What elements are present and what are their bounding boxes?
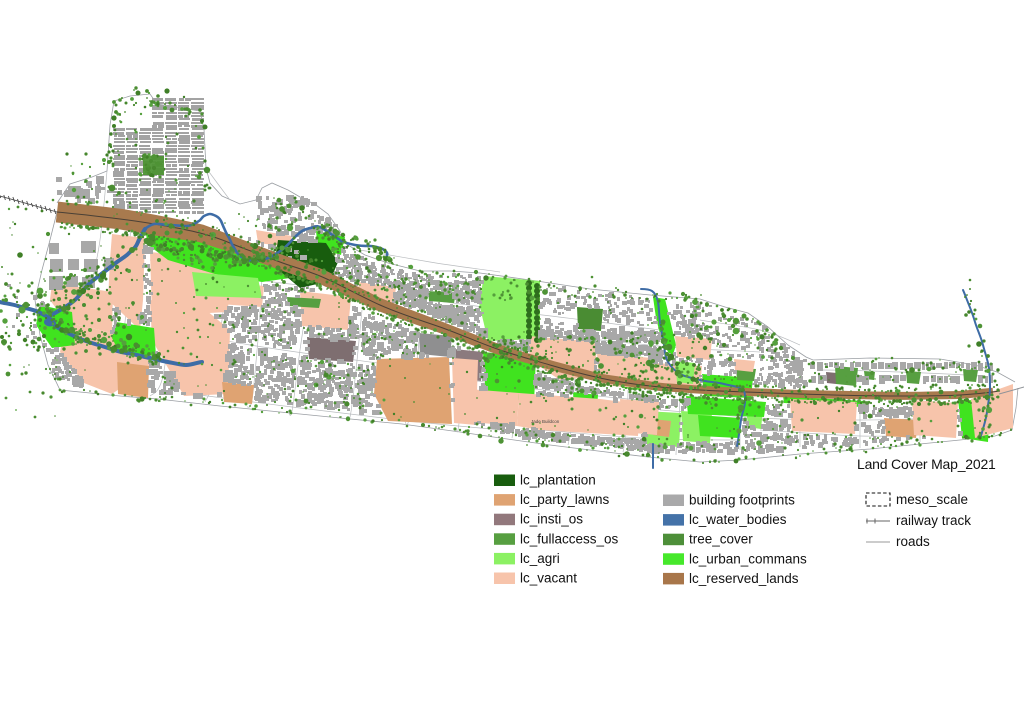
- svg-text:roads: roads: [896, 534, 930, 549]
- svg-text:Land Cover Map_2021: Land Cover Map_2021: [857, 456, 996, 472]
- svg-text:lc_plantation: lc_plantation: [520, 473, 596, 488]
- svg-text:lc_water_bodies: lc_water_bodies: [689, 512, 787, 527]
- svg-text:Jade Buildcon: Jade Buildcon: [531, 419, 560, 424]
- svg-text:lc_agri: lc_agri: [520, 551, 560, 566]
- svg-text:building footprints: building footprints: [689, 493, 795, 508]
- svg-text:railway track: railway track: [896, 513, 971, 528]
- svg-text:meso_scale: meso_scale: [896, 492, 968, 507]
- svg-text:lc_vacant: lc_vacant: [520, 571, 577, 586]
- svg-text:tree_cover: tree_cover: [689, 532, 753, 547]
- svg-text:lc_insti_os: lc_insti_os: [520, 512, 583, 527]
- svg-text:lc_reserved_lands: lc_reserved_lands: [689, 571, 799, 586]
- svg-text:lc_party_lawns: lc_party_lawns: [520, 492, 610, 507]
- svg-text:lc_urban_commans: lc_urban_commans: [689, 551, 807, 566]
- svg-text:lc_fullaccess_os: lc_fullaccess_os: [520, 531, 619, 546]
